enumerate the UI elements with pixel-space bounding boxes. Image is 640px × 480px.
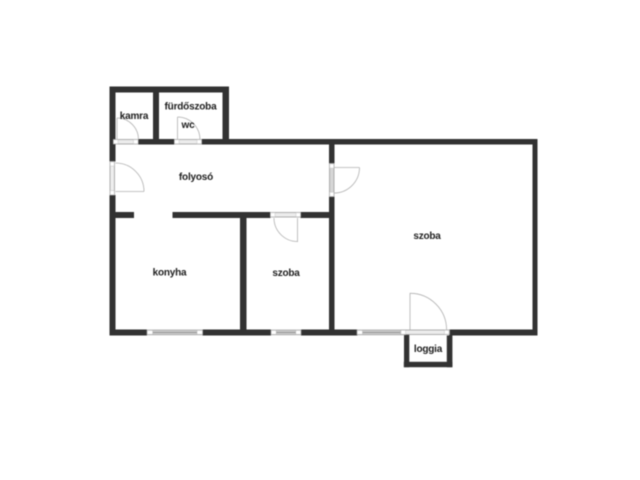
- svg-text:kamra: kamra: [120, 111, 149, 122]
- svg-text:folyosó: folyosó: [179, 172, 213, 183]
- svg-text:wc: wc: [181, 120, 196, 131]
- svg-text:szoba: szoba: [413, 231, 441, 242]
- svg-text:fürdőszoba: fürdőszoba: [165, 102, 218, 113]
- svg-text:szoba: szoba: [272, 268, 300, 279]
- svg-text:konyha: konyha: [153, 268, 187, 279]
- svg-text:loggia: loggia: [414, 344, 443, 355]
